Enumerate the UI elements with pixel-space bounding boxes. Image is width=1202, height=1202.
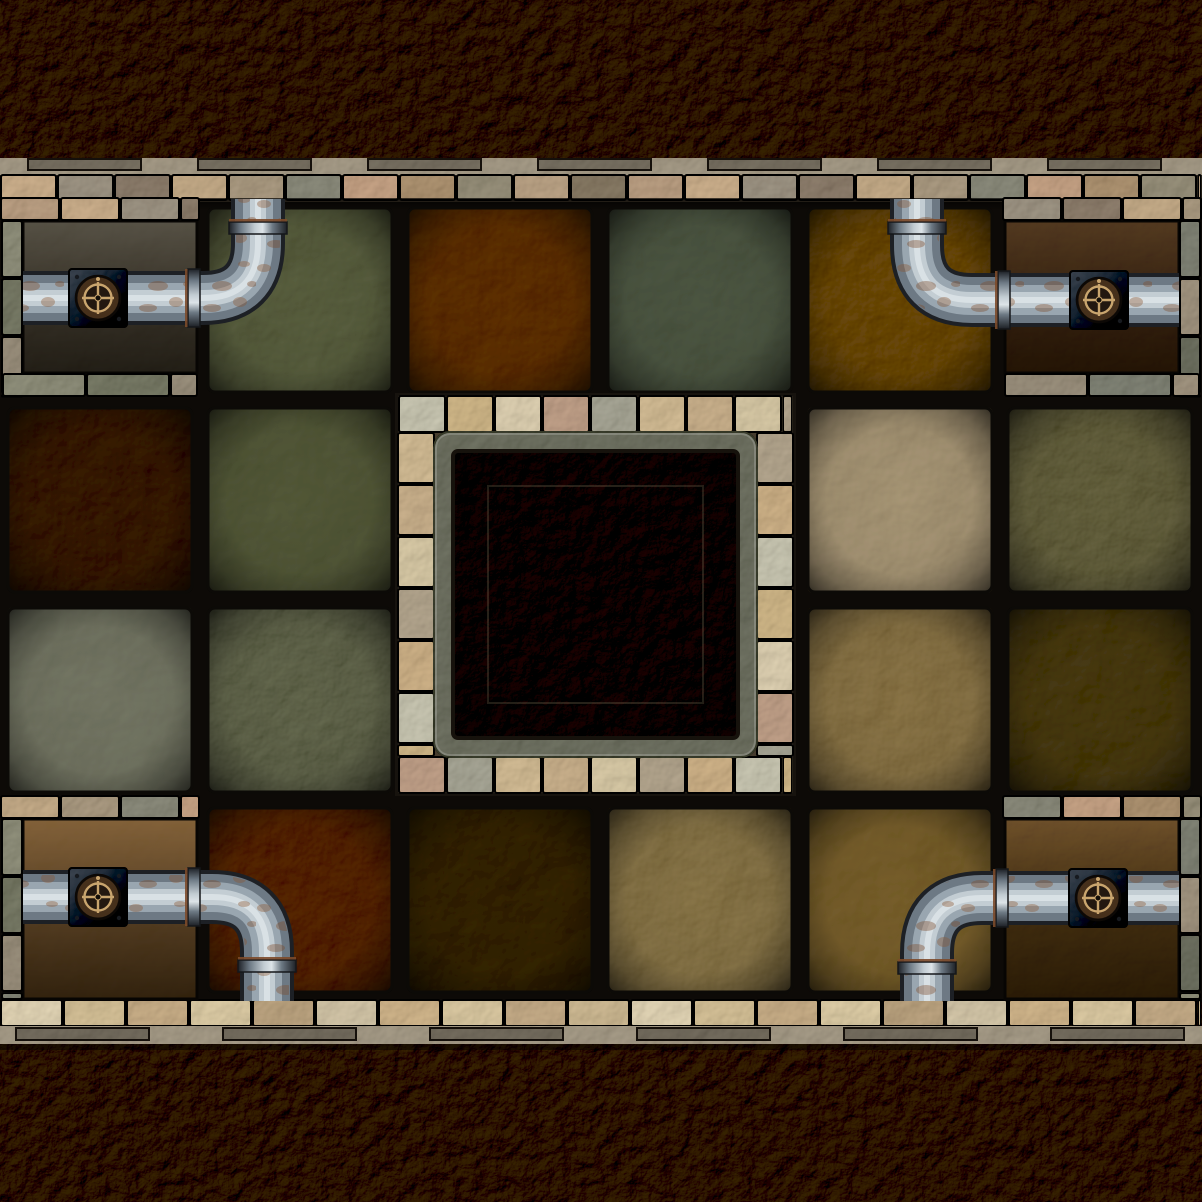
brick [970, 175, 1025, 200]
pipe-collar-rust [185, 269, 188, 327]
wall-notch [708, 159, 821, 170]
wall-notch [538, 159, 651, 170]
brick [1135, 1000, 1196, 1026]
tile-shade [807, 407, 993, 593]
brick [447, 396, 493, 432]
valve-rivet [1117, 875, 1121, 879]
brick [229, 175, 284, 200]
brick [694, 1000, 755, 1026]
brick [1063, 796, 1121, 818]
brick [127, 1000, 188, 1026]
valve-rivet [1076, 277, 1080, 281]
pipe-collar [998, 271, 1010, 329]
brick [1063, 198, 1121, 220]
valve-top-left[interactable] [69, 269, 127, 327]
brick [757, 537, 793, 587]
pipe-collar-rust [229, 219, 287, 222]
brick [1180, 877, 1200, 933]
brick [2, 819, 22, 875]
brick [190, 1000, 251, 1026]
central-pit [395, 393, 796, 796]
brick [1183, 198, 1201, 220]
brick [495, 396, 541, 432]
valve-rivet [117, 916, 121, 920]
valve-pointer-icon [1096, 877, 1100, 881]
brick [628, 175, 683, 200]
wall-bottom [0, 1000, 1202, 1050]
brick [783, 757, 792, 793]
tile-shade [1007, 407, 1193, 593]
brick [2, 935, 22, 991]
wall-notch [637, 1028, 770, 1040]
brick [1141, 175, 1196, 200]
valve-rivet [1075, 875, 1079, 879]
brick [1180, 993, 1200, 999]
brick [505, 1000, 566, 1026]
brick [913, 175, 968, 200]
brick [543, 757, 589, 793]
brick [1009, 1000, 1070, 1026]
brick [757, 1000, 818, 1026]
brick [543, 396, 589, 432]
brick [1198, 175, 1201, 200]
valve-rivet [75, 916, 79, 920]
valve-rivet [75, 317, 79, 321]
brick [61, 198, 119, 220]
wall-notch [223, 1028, 356, 1040]
tile-shade [607, 807, 793, 993]
tile-r1c5 [1007, 407, 1193, 593]
brick [946, 1000, 1007, 1026]
tile-r1c1 [207, 407, 393, 593]
brick [2, 279, 22, 335]
pipe-collar [229, 222, 287, 234]
brick [639, 396, 685, 432]
wall-notch [844, 1028, 977, 1040]
brick [514, 175, 569, 200]
wall-notch [28, 159, 141, 170]
tile-r1c0 [7, 407, 193, 593]
brick [1123, 796, 1181, 818]
valve-hub-icon [1095, 895, 1101, 901]
pipe-collar [898, 962, 956, 974]
valve-pointer-icon [96, 876, 100, 880]
pipe-collar [188, 868, 200, 926]
valve-rivet [1076, 319, 1080, 323]
brick [286, 175, 341, 200]
brick [685, 175, 740, 200]
brick [398, 745, 434, 756]
tile-shade [7, 607, 193, 793]
brick [757, 641, 793, 691]
tile-shade [207, 407, 393, 593]
pipe-collar-rust [238, 957, 296, 960]
dungeon-map-canvas [0, 0, 1202, 1202]
wall-notch [1051, 1028, 1184, 1040]
valve-rivet [117, 317, 121, 321]
brick [457, 175, 512, 200]
brick [64, 1000, 125, 1026]
valve-rivet [1117, 917, 1121, 921]
wall-bottom-coping [0, 1026, 1202, 1044]
brick [1003, 796, 1061, 818]
valve-pointer-icon [96, 277, 100, 281]
brick [398, 693, 434, 743]
valve-hub-icon [1096, 297, 1102, 303]
brick [856, 175, 911, 200]
brick [1027, 175, 1082, 200]
tile-r2c5 [1007, 607, 1193, 793]
tile-shade [7, 407, 193, 593]
brick [631, 1000, 692, 1026]
wall-notch [1048, 159, 1161, 170]
brick [1, 198, 59, 220]
pipe-collar-rust [898, 959, 956, 962]
tile-r2c0 [7, 607, 193, 793]
brick [735, 396, 781, 432]
brick [757, 433, 793, 483]
brick [398, 485, 434, 535]
brick [820, 1000, 881, 1026]
brick [121, 198, 179, 220]
tile-r3c3 [607, 807, 793, 993]
brick [61, 796, 119, 818]
brick [1003, 198, 1061, 220]
brick [757, 693, 793, 743]
tile-r2c1 [207, 607, 393, 793]
brick [757, 485, 793, 535]
pipe-collar [996, 869, 1008, 927]
brick [253, 1000, 314, 1026]
pipe-collar-rust [995, 271, 998, 329]
brick [1198, 1000, 1201, 1026]
tile-shade [607, 207, 793, 393]
brick [757, 589, 793, 639]
brick [495, 757, 541, 793]
brick [1, 796, 59, 818]
brick [2, 877, 22, 933]
tile-r2c4 [807, 607, 993, 793]
valve-top-right[interactable] [1070, 271, 1128, 329]
dungeon-map-stage [0, 0, 1202, 1202]
brick [1180, 279, 1200, 335]
pipe-collar [238, 960, 296, 972]
brick [1183, 796, 1201, 818]
valve-hub-icon [95, 295, 101, 301]
brick [181, 796, 199, 818]
brick [1, 1000, 62, 1026]
brick [316, 1000, 377, 1026]
wall-bottom-shadow [0, 1044, 1202, 1050]
tile-shade [807, 607, 993, 793]
brick [171, 374, 197, 396]
tile-shade [207, 607, 393, 793]
brick [639, 757, 685, 793]
brick [1005, 374, 1087, 396]
brick [735, 757, 781, 793]
valve-rivet [75, 275, 79, 279]
brick [1, 175, 56, 200]
brick [783, 396, 792, 432]
brick [591, 396, 637, 432]
valve-hub-icon [95, 894, 101, 900]
brick [58, 175, 113, 200]
brick [379, 1000, 440, 1026]
tile-shade [407, 207, 593, 393]
brick [799, 175, 854, 200]
valve-rivet [117, 874, 121, 878]
brick [883, 1000, 944, 1026]
tile-r1c4 [807, 407, 993, 593]
valve-rivet [1118, 319, 1122, 323]
brick [742, 175, 797, 200]
brick [1084, 175, 1139, 200]
tile-r3c2 [407, 807, 593, 993]
pipe-collar-rust [993, 869, 996, 927]
pipe-collar [888, 222, 946, 234]
brick [3, 374, 85, 396]
brick [687, 757, 733, 793]
brick [687, 396, 733, 432]
wall-notch [430, 1028, 563, 1040]
brick [398, 589, 434, 639]
wall-notch [368, 159, 481, 170]
valve-bottom-left[interactable] [69, 868, 127, 926]
tile-r0c3 [607, 207, 793, 393]
brick [1180, 935, 1200, 991]
brick [1180, 819, 1200, 875]
brick [343, 175, 398, 200]
brick [447, 757, 493, 793]
wall-notch [878, 159, 991, 170]
valve-rivet [1118, 277, 1122, 281]
brick [1089, 374, 1171, 396]
brick [571, 175, 626, 200]
brick [399, 757, 445, 793]
brick [400, 175, 455, 200]
brick [115, 175, 170, 200]
tile-shade [1007, 607, 1193, 793]
pit-shaft-shade [454, 452, 737, 737]
brick [2, 993, 22, 999]
brick [591, 757, 637, 793]
wall-notch [16, 1028, 149, 1040]
brick [568, 1000, 629, 1026]
pipe-collar-rust [185, 868, 188, 926]
brick [1173, 374, 1199, 396]
brick [1123, 198, 1181, 220]
brick [398, 641, 434, 691]
brick [399, 396, 445, 432]
brick [87, 374, 169, 396]
brick [2, 221, 22, 277]
valve-bottom-right[interactable] [1069, 869, 1127, 927]
pipe-collar [188, 269, 200, 327]
brick [1180, 221, 1200, 277]
brick [121, 796, 179, 818]
valve-rivet [117, 275, 121, 279]
brick [1072, 1000, 1133, 1026]
brick [757, 745, 793, 756]
tile-r0c2 [407, 207, 593, 393]
brick [442, 1000, 503, 1026]
brick [172, 175, 227, 200]
valve-pointer-icon [1097, 279, 1101, 283]
pipe-collar-rust [888, 219, 946, 222]
brick [398, 433, 434, 483]
tile-shade [407, 807, 593, 993]
valve-rivet [75, 874, 79, 878]
brick [181, 198, 199, 220]
wall-notch [198, 159, 311, 170]
valve-rivet [1075, 917, 1079, 921]
brick [398, 537, 434, 587]
